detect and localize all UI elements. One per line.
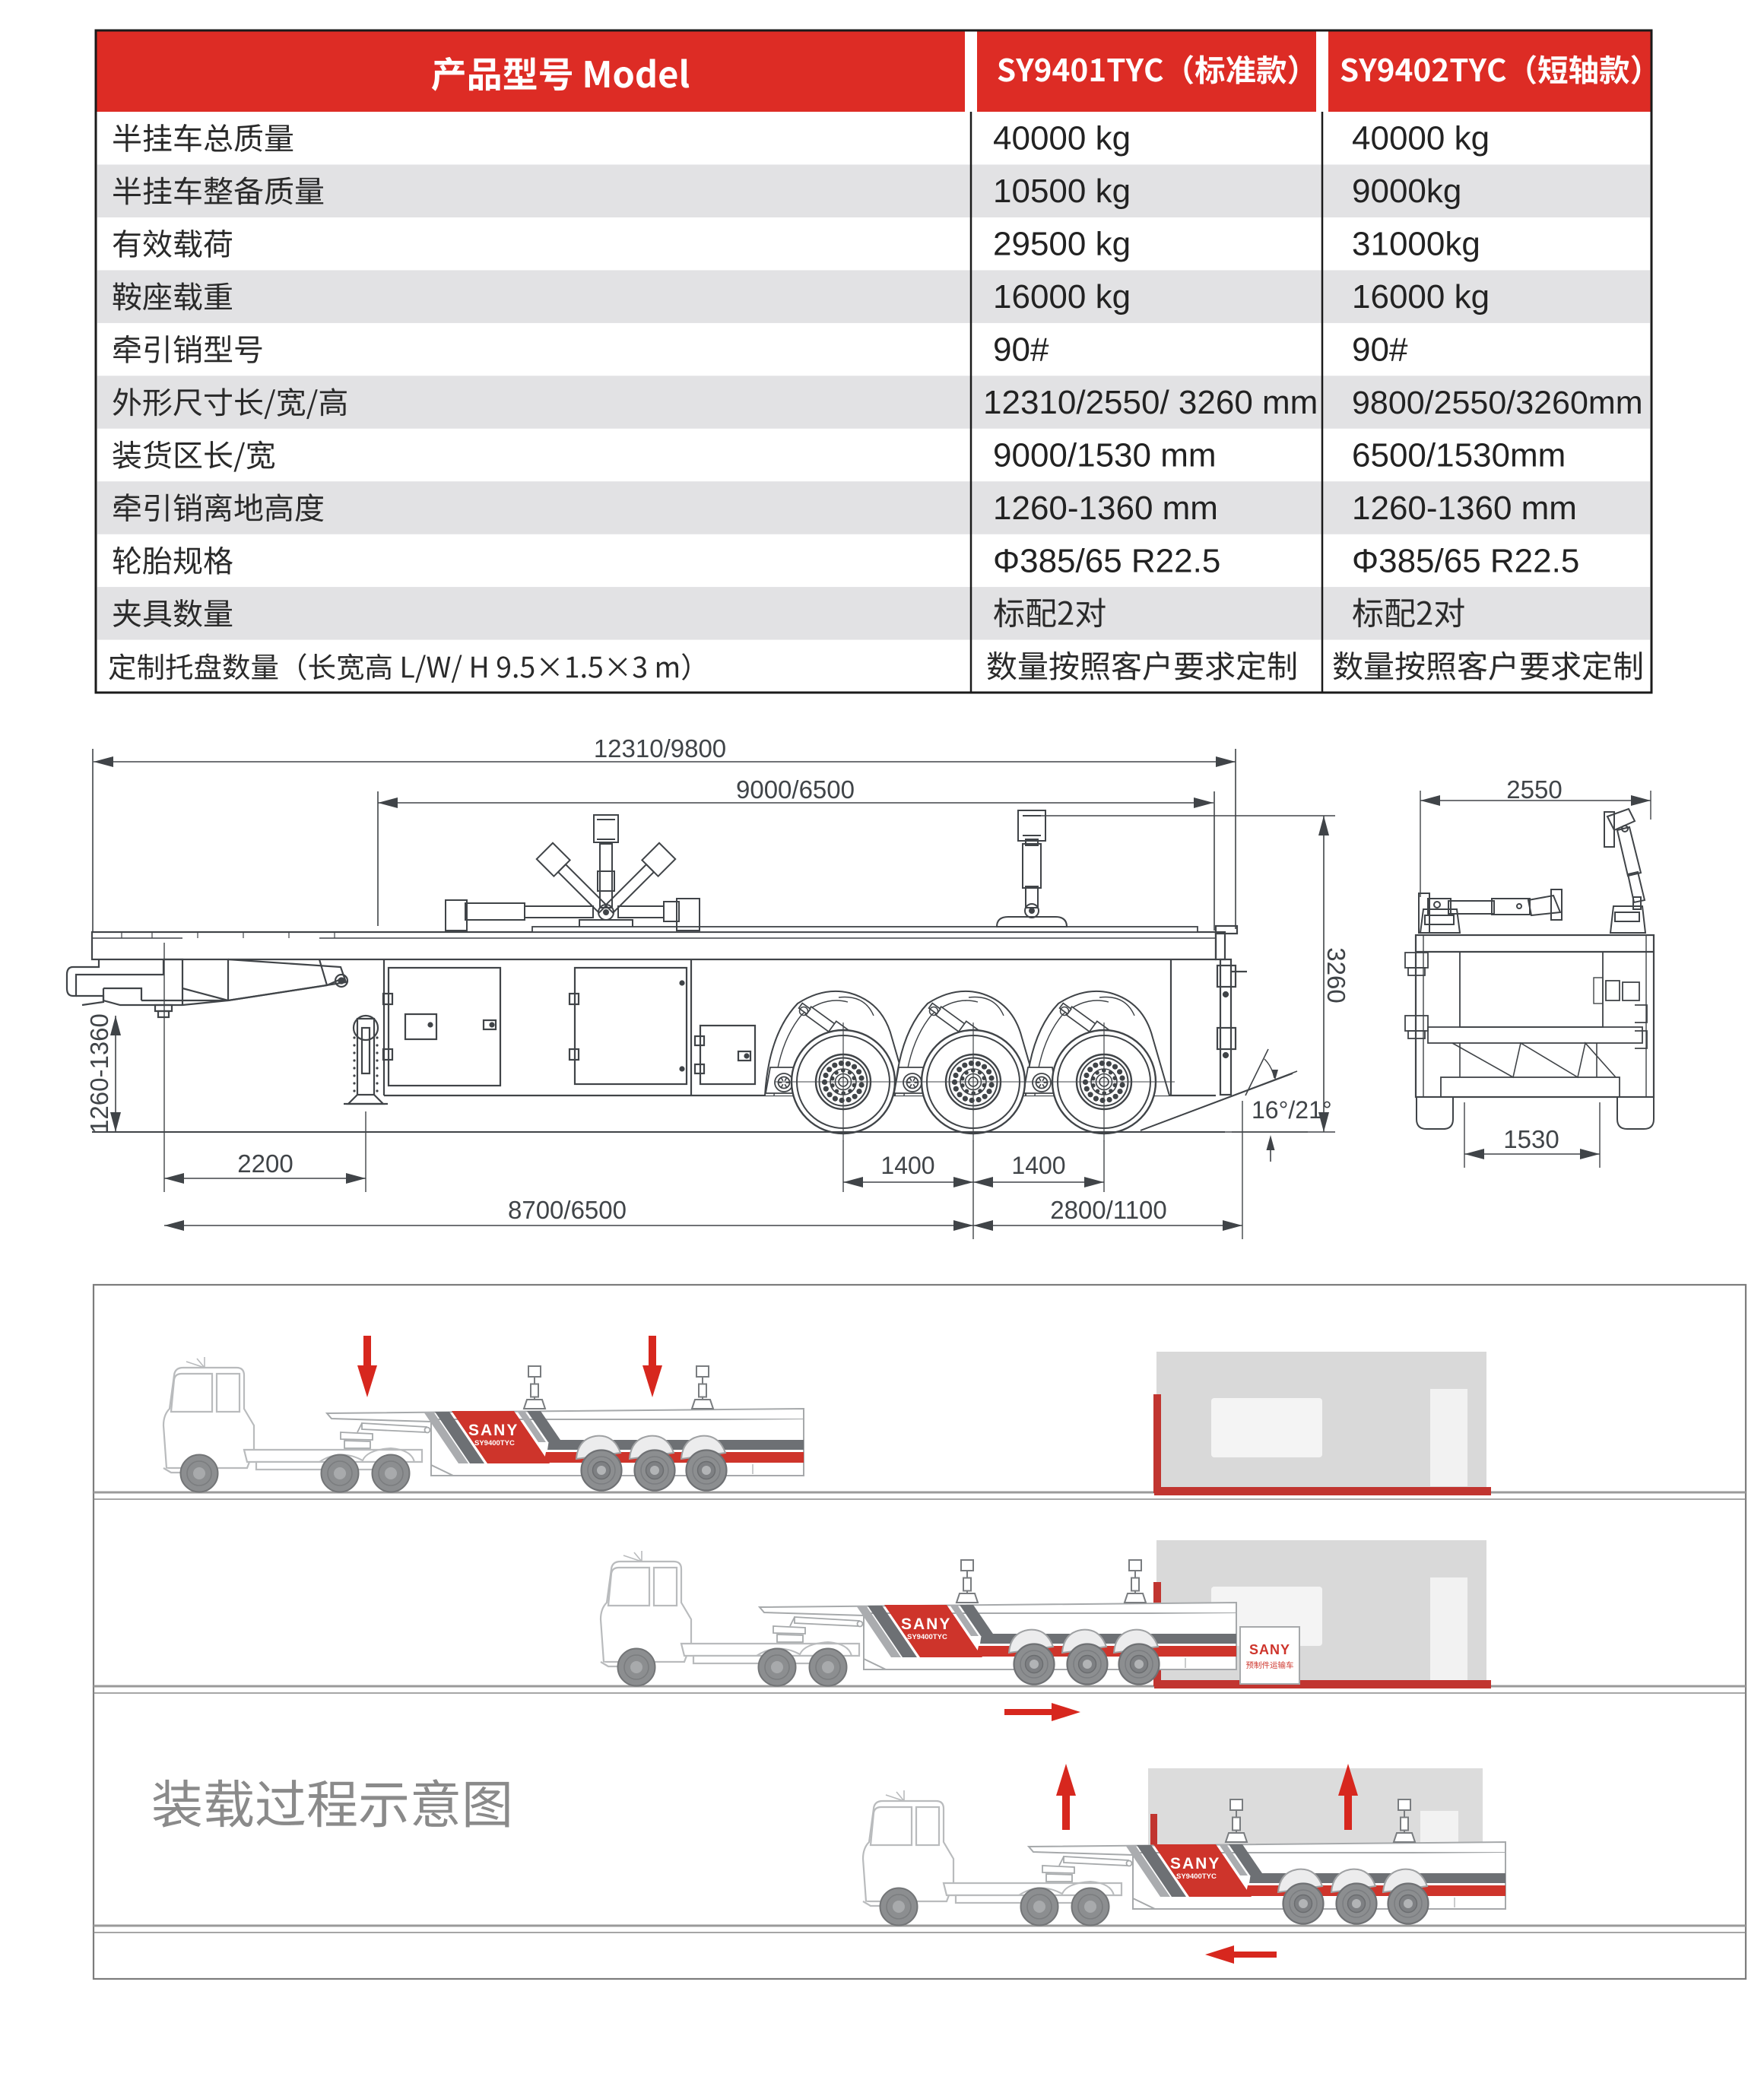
- svg-text:SANY: SANY: [1249, 1642, 1290, 1657]
- svg-text:40000 kg: 40000 kg: [993, 120, 1131, 157]
- svg-text:9000kg: 9000kg: [1352, 173, 1461, 210]
- svg-text:SANY: SANY: [1170, 1855, 1220, 1872]
- svg-text:SY9400TYC: SY9400TYC: [1176, 1872, 1217, 1881]
- svg-text:Φ385/65 R22.5: Φ385/65 R22.5: [993, 542, 1220, 579]
- svg-text:29500 kg: 29500 kg: [993, 226, 1131, 263]
- svg-text:1530: 1530: [1503, 1125, 1559, 1153]
- svg-text:2800/1100: 2800/1100: [1050, 1196, 1167, 1224]
- svg-text:1260-1360: 1260-1360: [85, 1013, 113, 1134]
- svg-text:90#: 90#: [1352, 331, 1408, 369]
- svg-text:SY9400TYC: SY9400TYC: [907, 1633, 947, 1641]
- svg-text:3260: 3260: [1322, 947, 1350, 1003]
- svg-text:16000 kg: 16000 kg: [993, 278, 1131, 315]
- svg-text:SANY: SANY: [468, 1422, 519, 1439]
- svg-text:2200: 2200: [237, 1149, 293, 1178]
- svg-text:9000/1530 mm: 9000/1530 mm: [993, 436, 1217, 474]
- svg-text:8700/6500: 8700/6500: [508, 1196, 627, 1224]
- svg-text:12310/9800: 12310/9800: [594, 734, 726, 763]
- svg-text:90#: 90#: [993, 331, 1049, 369]
- svg-text:31000kg: 31000kg: [1352, 226, 1480, 263]
- svg-text:9800/2550/3260mm: 9800/2550/3260mm: [1352, 385, 1643, 421]
- svg-text:9000/6500: 9000/6500: [736, 775, 855, 804]
- svg-text:Φ385/65 R22.5: Φ385/65 R22.5: [1352, 542, 1579, 579]
- svg-text:10500 kg: 10500 kg: [993, 173, 1131, 210]
- svg-text:16°/21°: 16°/21°: [1252, 1096, 1332, 1124]
- svg-text:SY9400TYC: SY9400TYC: [474, 1439, 515, 1447]
- svg-text:12310/2550/ 3260 mm: 12310/2550/ 3260 mm: [983, 384, 1318, 421]
- svg-text:2550: 2550: [1506, 775, 1562, 804]
- svg-text:6500/1530mm: 6500/1530mm: [1352, 436, 1566, 474]
- svg-text:SANY: SANY: [901, 1615, 951, 1633]
- svg-text:1400: 1400: [1011, 1152, 1065, 1179]
- svg-text:1260-1360 mm: 1260-1360 mm: [1352, 490, 1577, 527]
- svg-text:40000 kg: 40000 kg: [1352, 120, 1490, 157]
- svg-text:1260-1360 mm: 1260-1360 mm: [993, 490, 1218, 527]
- svg-text:16000 kg: 16000 kg: [1352, 278, 1490, 315]
- svg-text:1400: 1400: [880, 1152, 934, 1179]
